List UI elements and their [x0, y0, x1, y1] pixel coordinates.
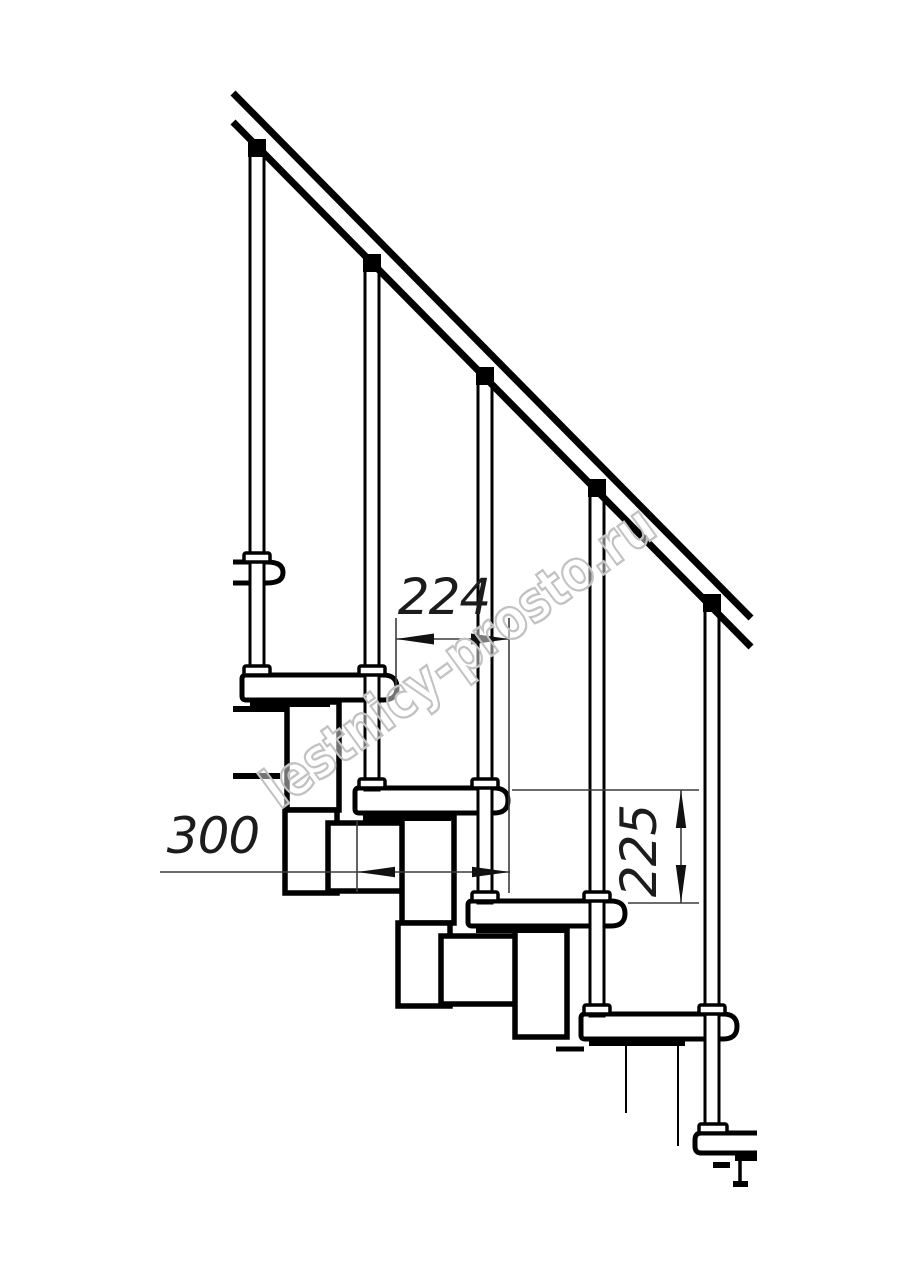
module-3-column: [402, 817, 454, 923]
baluster-1-foot-collar: [244, 666, 270, 675]
baluster-5-foot-collar: [699, 1124, 727, 1133]
baluster-5-crossing-collar: [699, 1005, 725, 1014]
baluster-4-foot-collar: [584, 1005, 610, 1014]
dim-225-arrow-down: [676, 865, 686, 903]
module-3-body: [328, 823, 403, 891]
dim-225-label: 225: [610, 805, 668, 897]
dim-225-arrow-up: [676, 790, 686, 828]
flange-under-tread-6b: [713, 1162, 730, 1168]
baluster-3-foot-collar: [472, 892, 498, 901]
staircase-drawing-page: 224 300 225 lestnicy-prosto.ru: [0, 0, 914, 1280]
baluster-2-foot-collar: [359, 779, 385, 788]
dim-300-label: 300: [167, 807, 259, 865]
module-4-body: [441, 936, 516, 1004]
tread-6-strut-foot: [733, 1181, 748, 1187]
baluster-3-crossing-collar: [472, 779, 498, 788]
staircase-technical-drawing: 224 300 225 lestnicy-prosto.ru: [0, 0, 914, 1280]
baluster-4-crossing-collar: [584, 892, 610, 901]
baluster-1-upper-collar: [244, 553, 270, 562]
baluster-5-tube: [705, 610, 719, 1133]
tread-6-truncated: [695, 1133, 757, 1153]
module-4-column: [515, 930, 567, 1037]
baluster-1-tube: [250, 155, 264, 675]
